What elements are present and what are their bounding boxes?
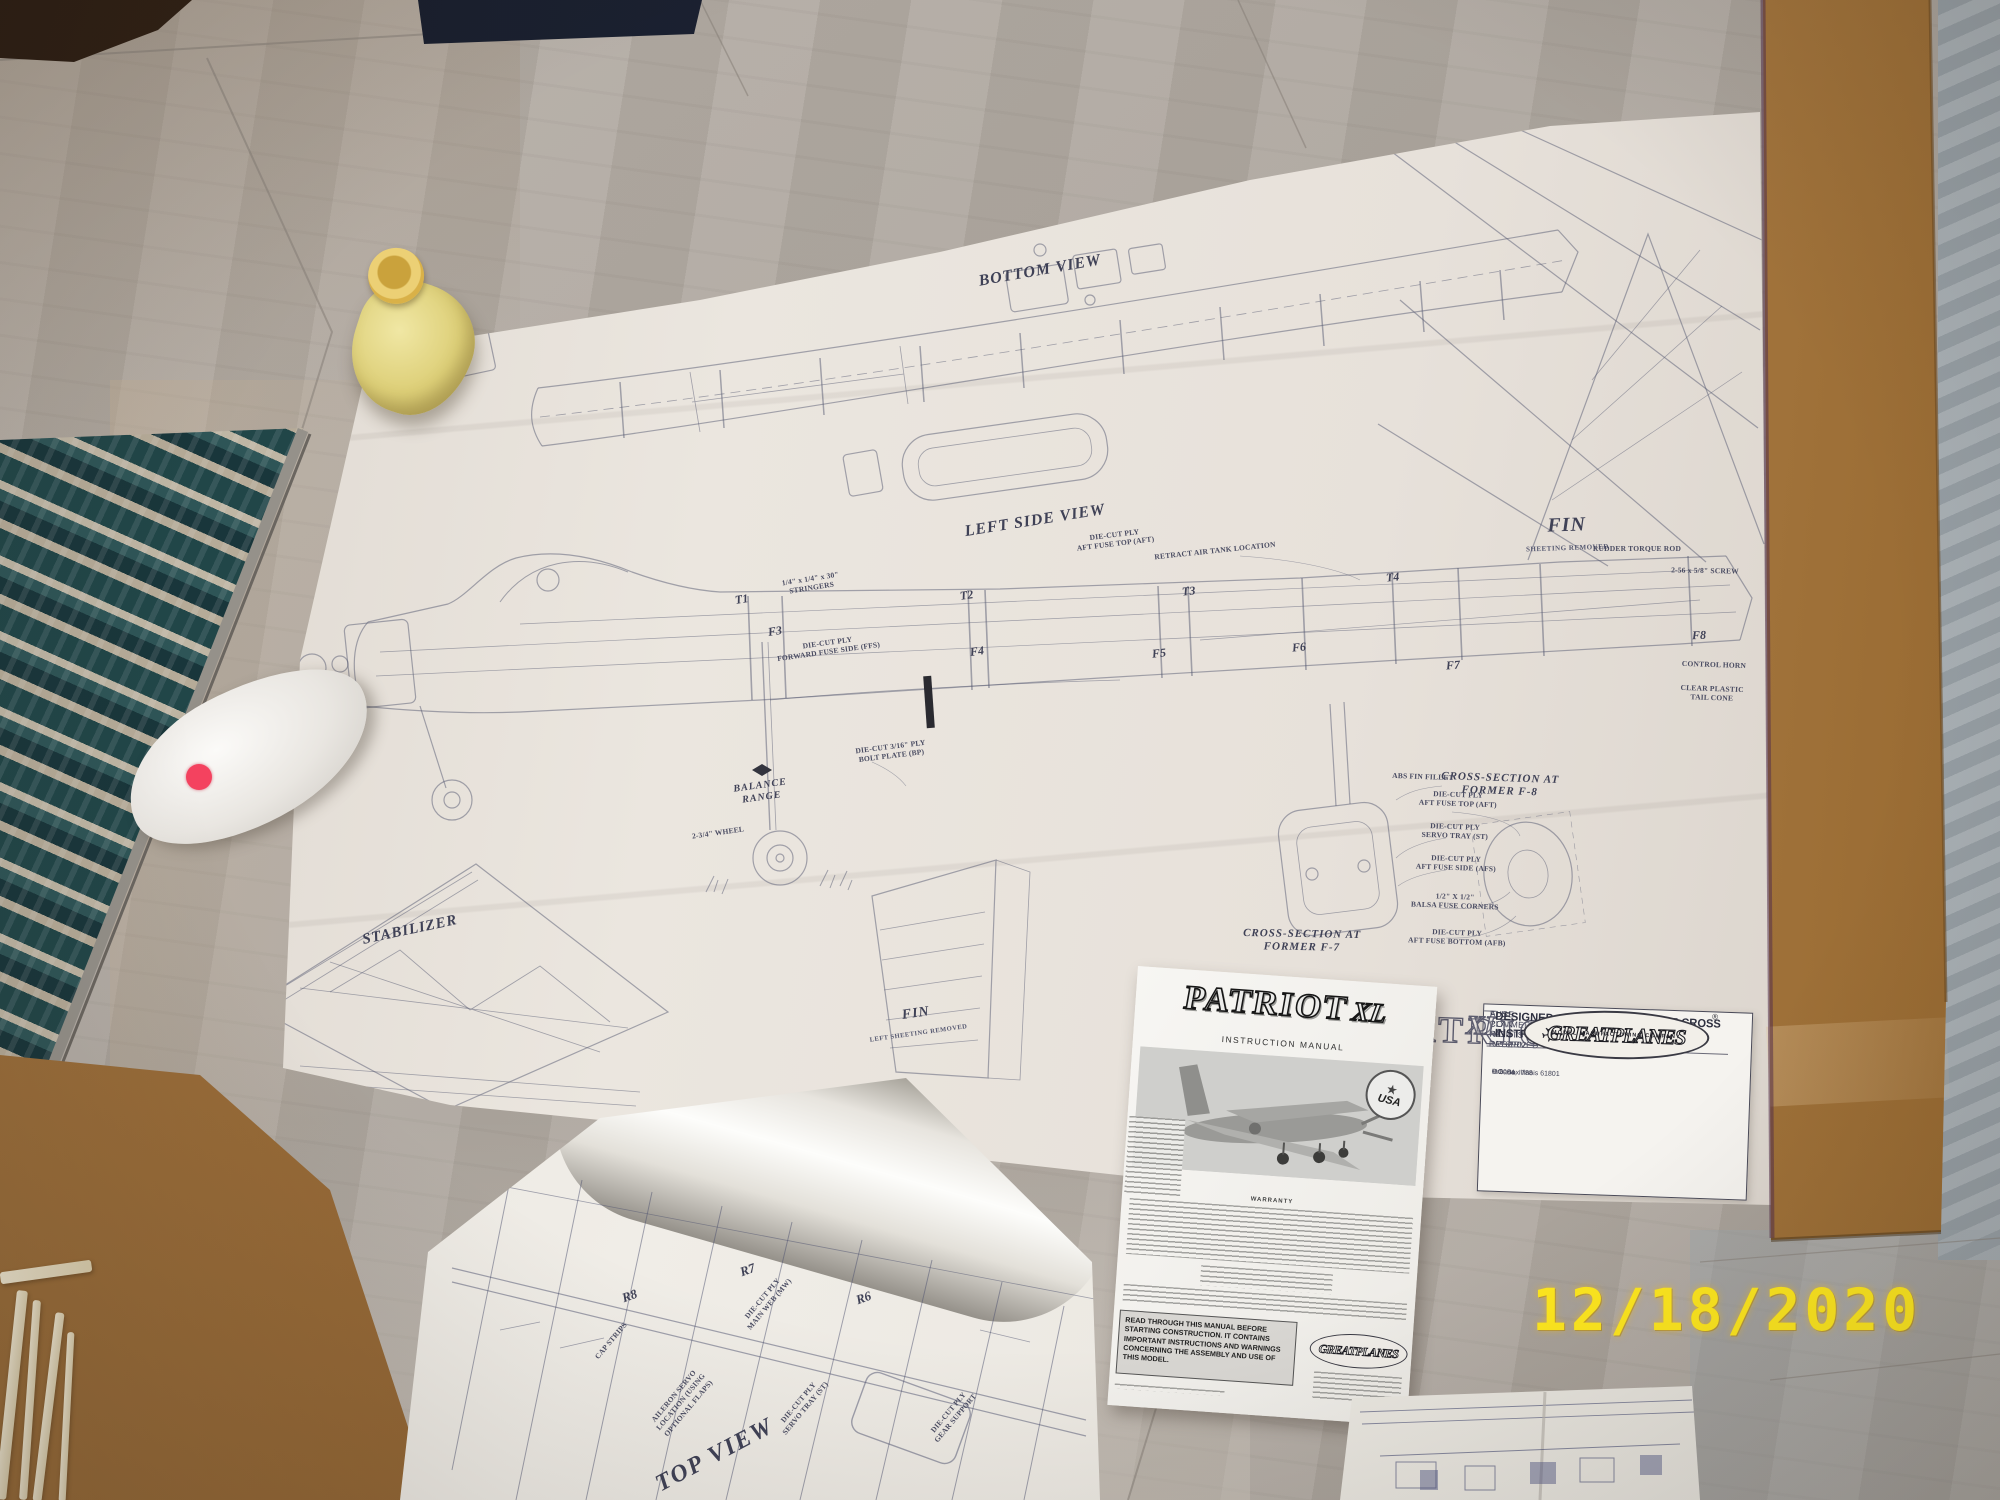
callout-control-horn: CONTROL HORN [1664,658,1764,671]
rib-label-r7: R7 [738,1260,758,1280]
callout-aileron-servo: AILERON SERVO LOCATION (USING OPTIONAL F… [641,1359,720,1446]
footer-line [1114,1383,1224,1396]
warning-box: READ THROUGH THIS MANUAL BEFORE STARTING… [1116,1310,1298,1386]
city-text: Urbana, Illinois 61801 [1492,1069,1560,1078]
photo-scene: BOTTOM VIEW LEFT SIDE VIEW FIN SHEETING … [0,0,2000,1500]
manual-title: PATRIOT [1181,980,1351,1028]
pink-sticker-dot [186,764,212,790]
manual-brand-logo: GREATPLANES [1309,1331,1409,1372]
usa-badge-text: USA [1376,1093,1401,1109]
callout-servo-tray: DIE-CUT PLY SERVO TRAY (ST) [1400,820,1511,843]
callout-aft-fuse-top: DIE-CUT PLY AFT FUSE TOP (AFT) [1398,788,1519,811]
rib-label-r8: R8 [620,1286,640,1306]
former-label-t2: T2 [959,587,974,604]
wing-bolt-slot [923,676,935,728]
title-block: ALL COMMERCIAL RIGHTS RESERVED FUSE PLAN… [1477,1003,1753,1200]
fin2-sublabel: LEFT SHEETING REMOVED [869,1023,968,1044]
callout-screw: 2-56 x 5/8" SCREW [1650,565,1760,576]
callout-bolt-plate: DIE-CUT 3/16" PLY BOLT PLATE (BP) [835,735,946,767]
brand-logo-area: ✈ GREATPLANES MODEL MANUFACTURING COMPAN… [1482,1004,1752,1079]
stabilizer-label: STABILIZER [340,908,481,954]
former-label-f7: F7 [1445,658,1460,674]
former-label-f3: F3 [767,623,783,640]
manual-brand-text: GREATPLANES [1318,1341,1399,1362]
former-label-f8: F8 [1692,628,1707,643]
balance-marker [752,764,772,776]
former-label-t3: T3 [1181,583,1196,599]
camera-date-stamp: 12/18/2020 [1532,1276,1921,1344]
registered-mark: ® [1712,1012,1718,1021]
fin-label: FIN [1547,513,1586,536]
callout-rudder-torque-rod: RUDDER TORQUE ROD [1582,544,1692,553]
former-label-f5: F5 [1151,645,1167,661]
bottom-view-label: BOTTOM VIEW [955,247,1126,295]
former-label-t4: T4 [1385,569,1400,585]
spec-text-lines [1124,1116,1185,1198]
callout-stringers: 1/4" x 1/4" x 30" STRINGERS [755,566,867,602]
callout-tail-cone: CLEAR PLASTIC TAIL CONE [1662,682,1763,704]
manual-title-group: PATRIOT XL [1133,976,1439,1035]
former-label-f6: F6 [1291,639,1306,655]
callout-forward-fuse-side: DIE-CUT PLY FORWARD FUSE SIDE (FFS) [767,630,888,665]
callout-balsa-fuse-corners: 1/2" X 1/2" BALSA FUSE CORNERS [1390,890,1521,913]
former-label-f4: F4 [969,643,985,660]
callout-gear-support: DIE-CUT PLY GEAR SUPPORT [919,1379,985,1452]
floor-bottom-right [1690,1230,2000,1500]
cross-section-f7-label: CROSS-SECTION AT FORMER F-7 [1222,927,1382,955]
callout-cap-strips: CAP STRIPS [585,1311,637,1371]
rib-label-r6: R6 [854,1288,874,1308]
instruction-manual-page: PATRIOT XL INSTRUCTION MANUAL ★ USA WARR… [1107,966,1437,1426]
manual-title-suffix: XL [1350,996,1390,1028]
callout-wheel: 2-3/4" WHEEL [678,822,759,842]
great-planes-logo: ✈ GREATPLANES MODEL MANUFACTURING COMPAN… [1523,1008,1711,1062]
balance-range-label: BALANCE RANGE [715,774,807,809]
title-block-footer: © 2004 P.O. Box 788 Urbana, Illinois 618… [1482,1068,1750,1077]
fin2-label: FIN [901,1004,931,1023]
cardboard-tape-seam [1766,1017,1950,1106]
callout-wing-servo-tray: DIE-CUT PLY SERVO TRAY (ST) [769,1369,835,1442]
former-label-t1: T1 [734,591,750,608]
callout-aft-fuse-side: DIE-CUT PLY AFT FUSE SIDE (AFS) [1396,852,1517,875]
fin2-label-group: FIN LEFT SHEETING REMOVED [860,997,974,1048]
callout-aft-fuse-bottom: DIE-CUT PLY AFT FUSE BOTTOM (AFB) [1392,926,1523,949]
callout-aft-fuse-top-2: DIE-CUT PLY AFT FUSE TOP (AFT) [1059,523,1170,555]
